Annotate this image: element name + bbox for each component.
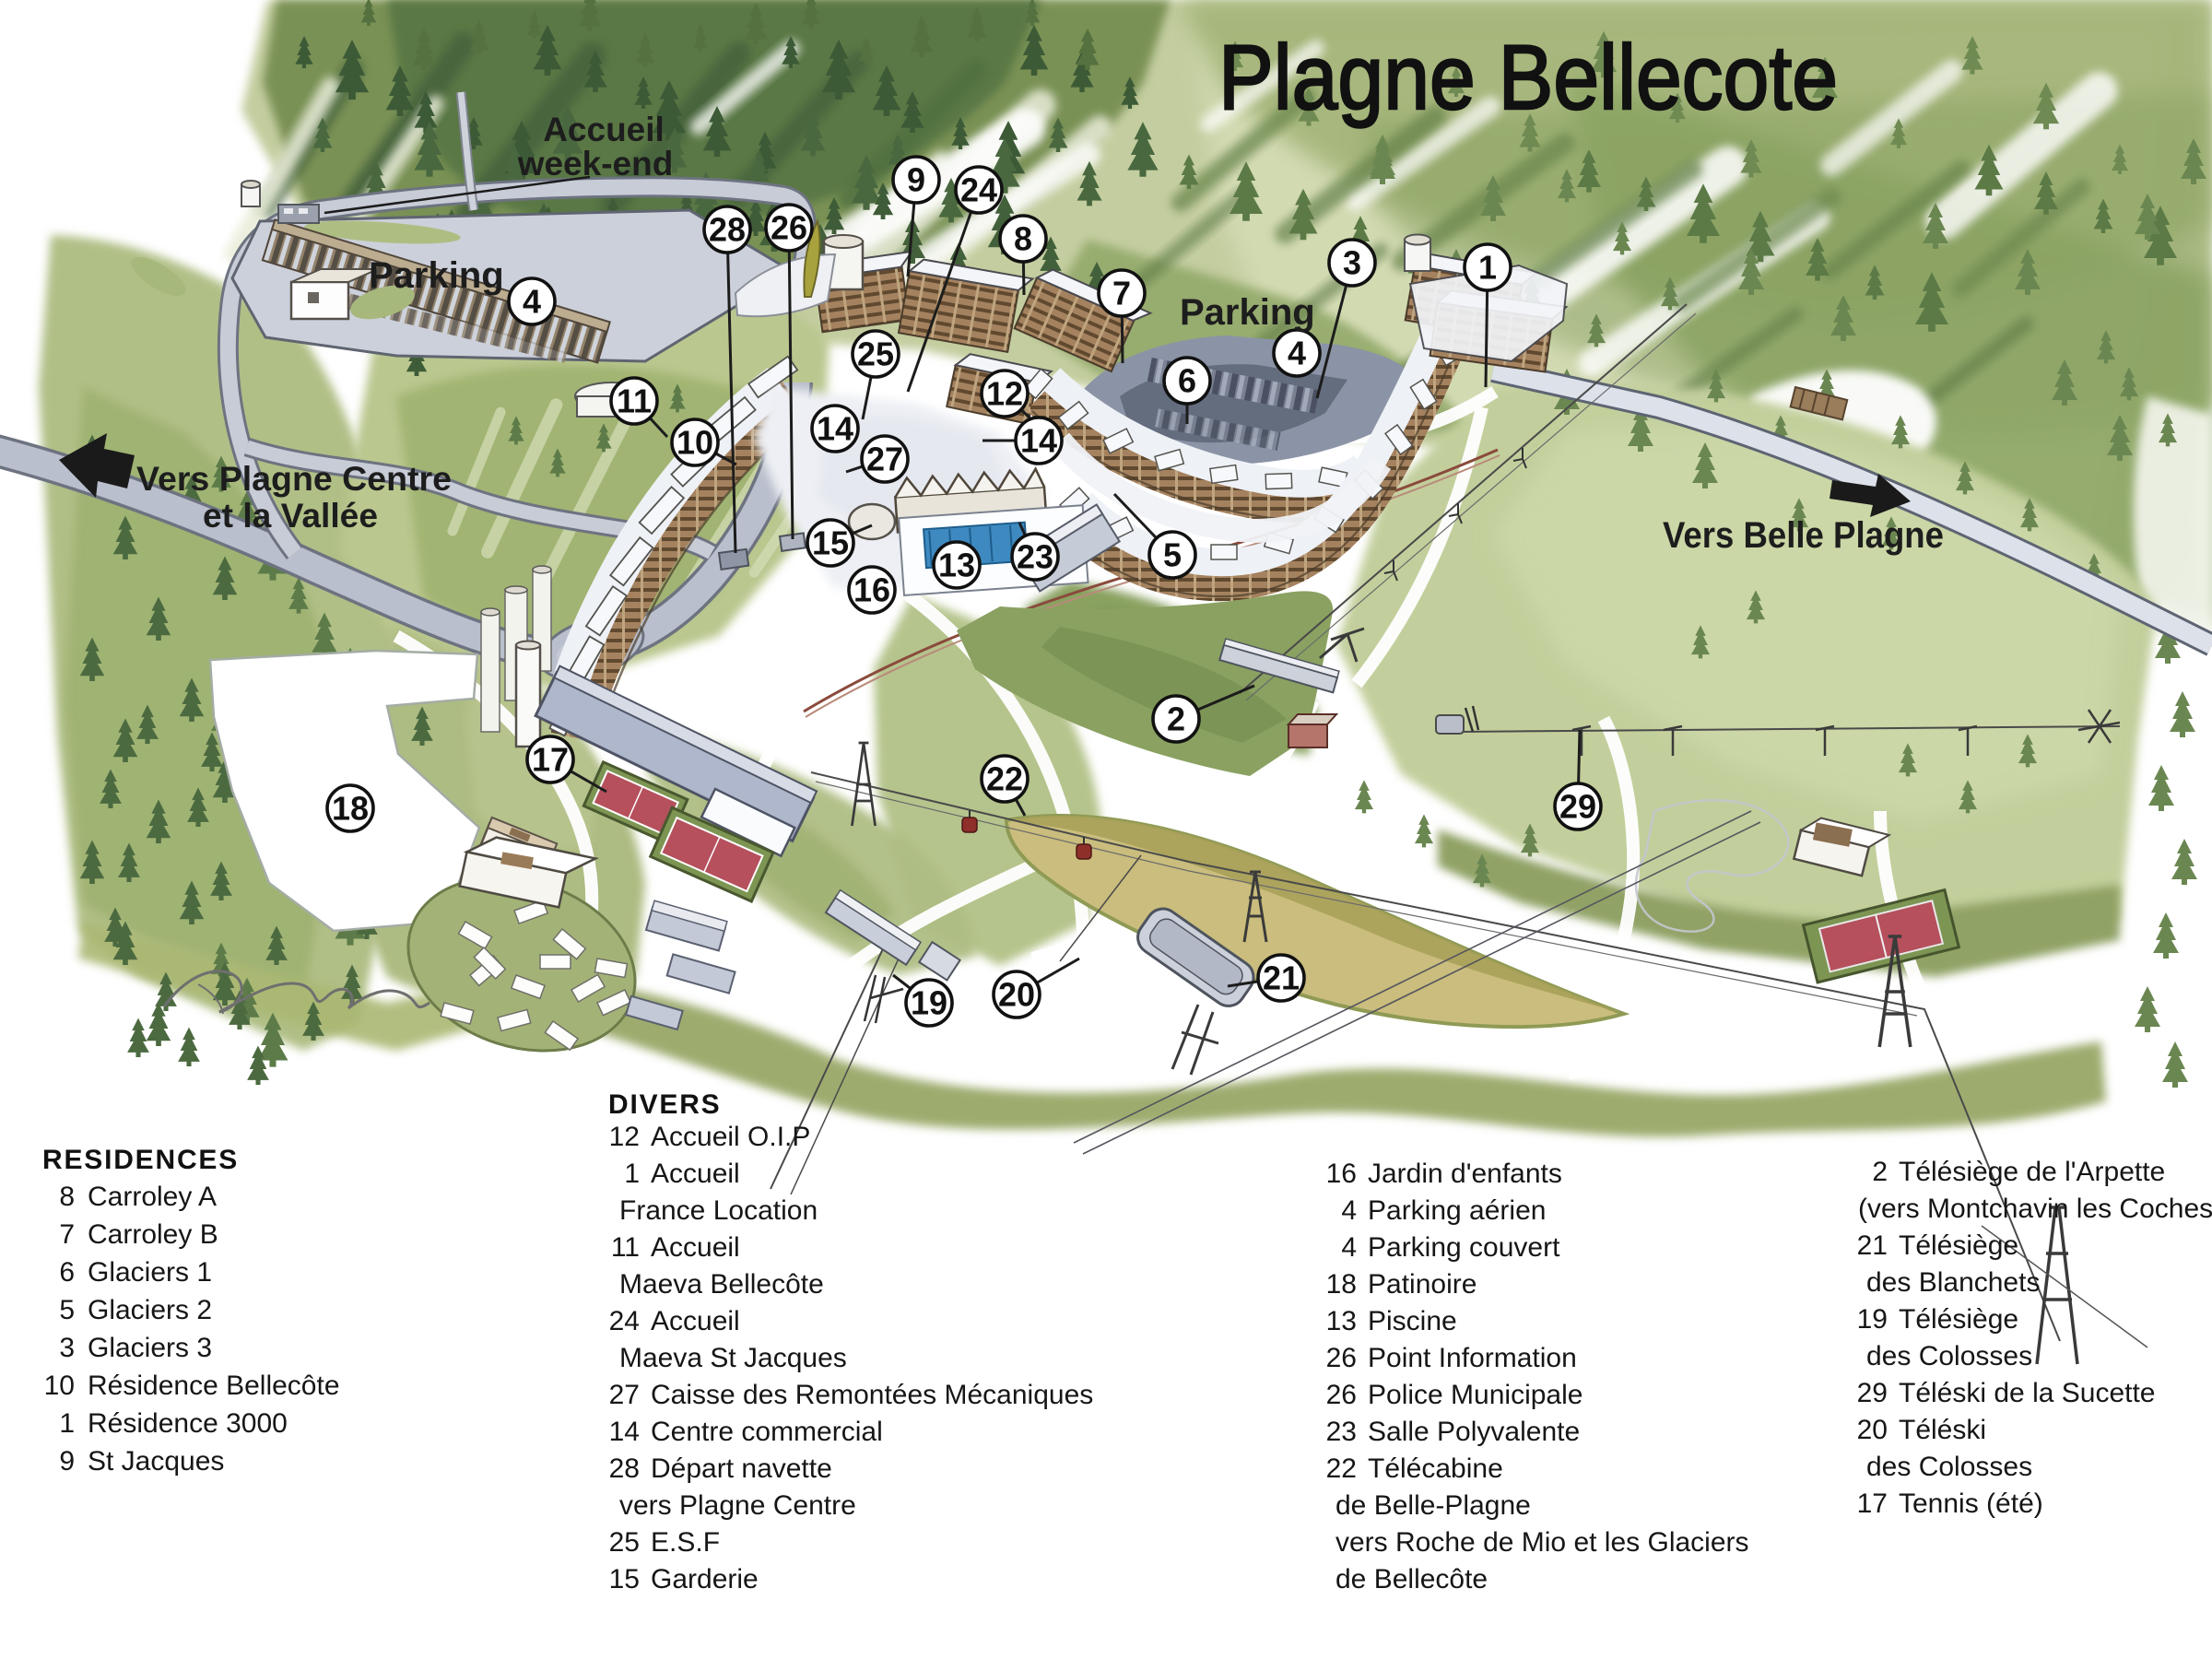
svg-text:9: 9 bbox=[59, 1446, 75, 1477]
svg-text:13: 13 bbox=[1326, 1306, 1357, 1336]
svg-text:France Location: France Location bbox=[619, 1195, 818, 1226]
svg-text:21: 21 bbox=[1857, 1230, 1888, 1261]
svg-text:11: 11 bbox=[611, 1232, 640, 1263]
svg-text:1: 1 bbox=[624, 1159, 640, 1189]
svg-text:des Blanchets: des Blanchets bbox=[1866, 1267, 2040, 1298]
svg-text:26: 26 bbox=[1326, 1343, 1357, 1373]
svg-text:9: 9 bbox=[907, 161, 925, 199]
svg-text:14: 14 bbox=[609, 1417, 640, 1447]
svg-text:12: 12 bbox=[609, 1122, 640, 1152]
svg-text:Parking aérien: Parking aérien bbox=[1368, 1195, 1546, 1226]
svg-text:Accueil O.I.P: Accueil O.I.P bbox=[651, 1122, 810, 1152]
svg-text:10: 10 bbox=[44, 1371, 75, 1401]
svg-text:5: 5 bbox=[1163, 536, 1182, 574]
svg-text:Tennis (été): Tennis (été) bbox=[1899, 1488, 2043, 1519]
svg-text:Résidence Bellecôte: Résidence Bellecôte bbox=[88, 1371, 340, 1401]
svg-text:Télésiège: Télésiège bbox=[1899, 1230, 2018, 1261]
svg-text:28: 28 bbox=[609, 1453, 640, 1484]
svg-text:16: 16 bbox=[1326, 1159, 1357, 1189]
svg-text:2: 2 bbox=[1167, 700, 1185, 738]
svg-text:18: 18 bbox=[332, 790, 369, 828]
svg-text:Police Municipale: Police Municipale bbox=[1368, 1380, 1583, 1410]
svg-text:Résidence 3000: Résidence 3000 bbox=[88, 1408, 288, 1439]
svg-text:Vers Plagne Centre: Vers Plagne Centre bbox=[136, 460, 452, 498]
svg-text:18: 18 bbox=[1326, 1269, 1357, 1300]
svg-text:vers Plagne Centre: vers Plagne Centre bbox=[619, 1490, 856, 1521]
svg-text:week-end: week-end bbox=[517, 145, 674, 182]
svg-text:4: 4 bbox=[1341, 1195, 1357, 1226]
svg-text:25: 25 bbox=[857, 335, 894, 373]
svg-text:Glaciers 2: Glaciers 2 bbox=[88, 1295, 212, 1325]
svg-text:Salle Polyvalente: Salle Polyvalente bbox=[1368, 1417, 1580, 1447]
svg-text:DIVERS: DIVERS bbox=[608, 1089, 722, 1120]
svg-text:8: 8 bbox=[1014, 220, 1032, 258]
svg-text:4: 4 bbox=[1288, 335, 1306, 372]
svg-text:E.S.F: E.S.F bbox=[651, 1527, 720, 1558]
svg-text:14: 14 bbox=[817, 410, 853, 448]
svg-text:15: 15 bbox=[609, 1564, 640, 1594]
svg-text:29: 29 bbox=[1857, 1378, 1888, 1408]
svg-text:Centre commercial: Centre commercial bbox=[651, 1417, 883, 1447]
svg-text:3: 3 bbox=[1343, 244, 1361, 282]
svg-text:et la Vallée: et la Vallée bbox=[203, 497, 378, 535]
svg-text:8: 8 bbox=[59, 1182, 75, 1212]
svg-text:26: 26 bbox=[1326, 1380, 1357, 1410]
svg-text:23: 23 bbox=[1017, 538, 1053, 576]
svg-text:Carroley A: Carroley A bbox=[88, 1182, 217, 1212]
svg-text:2: 2 bbox=[1872, 1157, 1888, 1187]
svg-text:Vers Belle Plagne: Vers Belle Plagne bbox=[1663, 515, 1944, 556]
svg-text:3: 3 bbox=[59, 1333, 75, 1363]
svg-text:15: 15 bbox=[812, 524, 849, 562]
svg-text:Téléski de la Sucette: Téléski de la Sucette bbox=[1899, 1378, 2155, 1408]
svg-text:19: 19 bbox=[911, 984, 947, 1022]
svg-text:des Colosses: des Colosses bbox=[1866, 1341, 2032, 1371]
svg-text:13: 13 bbox=[938, 547, 975, 584]
svg-text:Téléski: Téléski bbox=[1899, 1415, 1986, 1445]
svg-text:29: 29 bbox=[1559, 788, 1596, 826]
svg-text:10: 10 bbox=[677, 424, 713, 462]
svg-text:6: 6 bbox=[1178, 362, 1196, 400]
svg-text:Piscine: Piscine bbox=[1368, 1306, 1457, 1336]
svg-text:(vers Montchavin les Coches: (vers Montchavin les Coches bbox=[1858, 1194, 2212, 1224]
svg-text:Télécabine: Télécabine bbox=[1368, 1453, 1503, 1484]
svg-text:22: 22 bbox=[1326, 1453, 1357, 1484]
svg-text:Télésiège de l'Arpette: Télésiège de l'Arpette bbox=[1899, 1157, 2165, 1187]
svg-text:Jardin d'enfants: Jardin d'enfants bbox=[1368, 1159, 1562, 1189]
svg-text:24: 24 bbox=[609, 1306, 640, 1336]
svg-text:14: 14 bbox=[1020, 422, 1057, 460]
svg-text:4: 4 bbox=[1341, 1232, 1357, 1263]
svg-text:6: 6 bbox=[59, 1257, 75, 1288]
svg-text:27: 27 bbox=[866, 441, 903, 478]
svg-text:Maeva Bellecôte: Maeva Bellecôte bbox=[619, 1269, 824, 1300]
svg-text:7: 7 bbox=[59, 1219, 75, 1250]
svg-text:20: 20 bbox=[1857, 1415, 1888, 1445]
svg-text:des Colosses: des Colosses bbox=[1866, 1452, 2032, 1482]
svg-text:Glaciers 3: Glaciers 3 bbox=[88, 1333, 212, 1363]
svg-text:Parking: Parking bbox=[369, 255, 504, 296]
svg-text:Départ navette: Départ navette bbox=[651, 1453, 832, 1484]
svg-text:12: 12 bbox=[986, 375, 1023, 413]
svg-text:1: 1 bbox=[1478, 249, 1497, 287]
svg-text:Accueil: Accueil bbox=[651, 1232, 740, 1263]
svg-text:21: 21 bbox=[1263, 959, 1300, 997]
svg-text:de Belle-Plagne: de Belle-Plagne bbox=[1335, 1490, 1531, 1521]
svg-text:7: 7 bbox=[1112, 275, 1131, 312]
svg-text:22: 22 bbox=[986, 760, 1023, 798]
svg-text:24: 24 bbox=[960, 171, 997, 209]
svg-text:26: 26 bbox=[771, 209, 807, 247]
svg-text:Accueil: Accueil bbox=[543, 111, 665, 148]
svg-text:Plagne Bellecote: Plagne Bellecote bbox=[1218, 26, 1838, 128]
svg-text:11: 11 bbox=[617, 382, 652, 420]
svg-text:Garderie: Garderie bbox=[651, 1564, 759, 1594]
svg-text:Patinoire: Patinoire bbox=[1368, 1269, 1477, 1300]
svg-text:27: 27 bbox=[609, 1380, 640, 1410]
svg-text:Caisse des Remontées Mécanique: Caisse des Remontées Mécaniques bbox=[651, 1380, 1093, 1410]
svg-text:Accueil: Accueil bbox=[651, 1159, 740, 1189]
svg-text:17: 17 bbox=[532, 741, 569, 779]
svg-text:RESIDENCES: RESIDENCES bbox=[42, 1145, 239, 1175]
svg-text:28: 28 bbox=[709, 211, 746, 249]
svg-text:Point Information: Point Information bbox=[1368, 1343, 1577, 1373]
svg-text:St Jacques: St Jacques bbox=[88, 1446, 224, 1477]
svg-text:16: 16 bbox=[853, 571, 890, 609]
svg-text:Télésiège: Télésiège bbox=[1899, 1304, 2018, 1335]
svg-text:19: 19 bbox=[1857, 1304, 1888, 1335]
svg-text:Accueil: Accueil bbox=[651, 1306, 740, 1336]
svg-text:20: 20 bbox=[998, 976, 1035, 1014]
svg-text:4: 4 bbox=[523, 283, 541, 321]
svg-text:23: 23 bbox=[1326, 1417, 1357, 1447]
svg-text:Maeva St Jacques: Maeva St Jacques bbox=[619, 1343, 847, 1373]
svg-text:Parking couvert: Parking couvert bbox=[1368, 1232, 1560, 1263]
svg-text:Parking: Parking bbox=[1180, 292, 1315, 333]
svg-text:17: 17 bbox=[1857, 1488, 1888, 1519]
svg-text:5: 5 bbox=[59, 1295, 75, 1325]
svg-text:25: 25 bbox=[609, 1527, 640, 1558]
svg-text:Carroley B: Carroley B bbox=[88, 1219, 218, 1250]
svg-text:1: 1 bbox=[59, 1408, 75, 1439]
svg-text:Glaciers 1: Glaciers 1 bbox=[88, 1257, 212, 1288]
svg-text:vers Roche de Mio et les Glaci: vers Roche de Mio et les Glaciers bbox=[1335, 1527, 1749, 1558]
svg-text:de Bellecôte: de Bellecôte bbox=[1335, 1564, 1488, 1594]
